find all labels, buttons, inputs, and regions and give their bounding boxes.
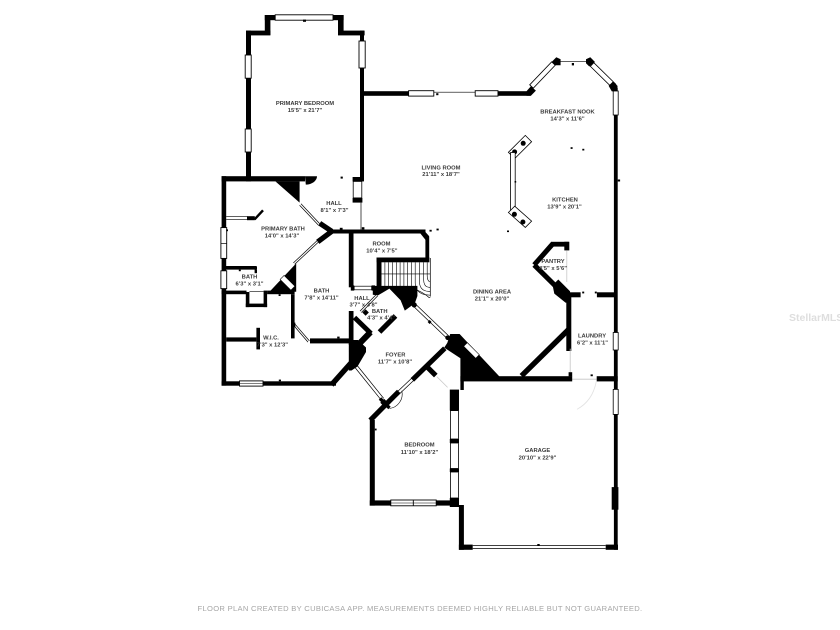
svg-text:4’3" x 4’4": 4’3" x 4’4" xyxy=(367,316,395,322)
svg-text:BATH: BATH xyxy=(314,289,330,295)
svg-text:BATH: BATH xyxy=(372,309,388,315)
svg-text:HALL: HALL xyxy=(354,296,370,302)
svg-text:ROOM: ROOM xyxy=(372,242,390,248)
svg-text:8’1" x 7’3": 8’1" x 7’3" xyxy=(320,208,348,214)
svg-text:FOYER: FOYER xyxy=(386,353,407,359)
svg-text:LIVING ROOM: LIVING ROOM xyxy=(422,166,461,172)
svg-text:10’4" x 7’5": 10’4" x 7’5" xyxy=(366,249,398,255)
svg-text:14’3" x 11’6": 14’3" x 11’6" xyxy=(550,117,584,123)
svg-text:FLOOR PLAN CREATED BY CUBICASA: FLOOR PLAN CREATED BY CUBICASA APP. MEAS… xyxy=(198,604,643,613)
svg-text:StellarMLS: StellarMLS xyxy=(789,312,840,324)
svg-text:6’2" x 11’1": 6’2" x 11’1" xyxy=(577,341,608,347)
svg-text:DINING AREA: DINING AREA xyxy=(473,290,512,296)
svg-text:LAUNDRY: LAUNDRY xyxy=(578,334,606,340)
svg-text:6’3" x 3’1": 6’3" x 3’1" xyxy=(235,282,263,288)
svg-text:BEDROOM: BEDROOM xyxy=(404,443,434,449)
svg-text:7’8" x 14’11": 7’8" x 14’11" xyxy=(304,296,338,302)
svg-text:21’1" x 20’0": 21’1" x 20’0" xyxy=(475,297,510,303)
svg-text:HALL: HALL xyxy=(326,201,342,207)
svg-text:PRIMARY BATH: PRIMARY BATH xyxy=(261,227,305,233)
svg-text:13’9" x 20’1": 13’9" x 20’1" xyxy=(547,205,582,211)
svg-text:BREAKFAST NOOK: BREAKFAST NOOK xyxy=(540,110,595,116)
svg-text:15’5" x 21’7": 15’5" x 21’7" xyxy=(288,108,323,114)
svg-text:GARAGE: GARAGE xyxy=(525,448,551,454)
svg-text:20’10" x 22’9": 20’10" x 22’9" xyxy=(519,455,557,461)
svg-text:7’3" x 12’3": 7’3" x 12’3" xyxy=(257,343,289,349)
svg-text:21’11" x 18’7": 21’11" x 18’7" xyxy=(422,172,460,178)
svg-text:KITCHEN: KITCHEN xyxy=(552,198,578,204)
svg-text:11’7" x 10’8": 11’7" x 10’8" xyxy=(378,360,412,366)
svg-text:W.I.C.: W.I.C. xyxy=(263,336,279,342)
svg-text:PANTRY: PANTRY xyxy=(541,259,564,265)
svg-text:11’10" x 18’2": 11’10" x 18’2" xyxy=(401,450,439,456)
svg-text:BATH: BATH xyxy=(242,275,258,281)
svg-text:PRIMARY BEDROOM: PRIMARY BEDROOM xyxy=(276,101,334,107)
svg-text:4’5" x 5’6": 4’5" x 5’6" xyxy=(539,266,567,272)
svg-text:3’7" x 3’8": 3’7" x 3’8" xyxy=(349,302,377,308)
svg-text:14’0" x 14’3": 14’0" x 14’3" xyxy=(265,234,300,240)
